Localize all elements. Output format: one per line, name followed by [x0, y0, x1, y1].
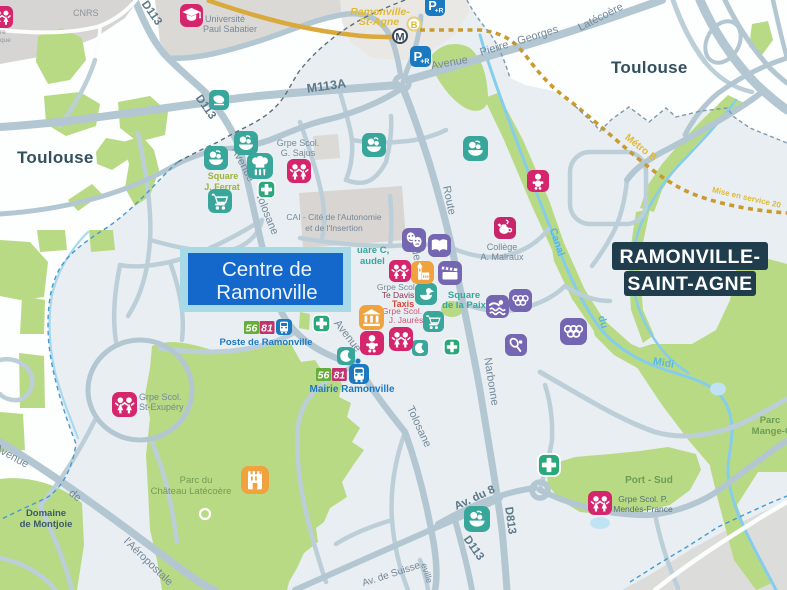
- svg-text:St-Exupéry: St-Exupéry: [139, 402, 184, 412]
- svg-text:+R: +R: [420, 59, 429, 66]
- svg-text:SAINT-AGNE: SAINT-AGNE: [627, 273, 752, 295]
- svg-text:M: M: [395, 32, 404, 44]
- svg-text:81: 81: [261, 323, 273, 335]
- svg-text:Centre de: Centre de: [222, 258, 312, 281]
- svg-text:Toulouse: Toulouse: [611, 58, 688, 77]
- svg-text:audel: audel: [360, 256, 385, 267]
- svg-text:Parc du: Parc du: [180, 475, 213, 486]
- svg-text:Port - Sud: Port - Sud: [625, 475, 673, 486]
- svg-text:Parc: Parc: [760, 415, 781, 426]
- svg-text:St-Agne: St-Agne: [359, 16, 399, 28]
- svg-text:A. Malraux: A. Malraux: [480, 252, 524, 262]
- svg-text:+R: +R: [435, 8, 444, 15]
- svg-text:81: 81: [333, 370, 345, 382]
- svg-text:Collège: Collège: [487, 242, 518, 252]
- svg-text:Ramonville: Ramonville: [216, 281, 317, 304]
- svg-text:Mairie Ramonville: Mairie Ramonville: [309, 384, 394, 395]
- svg-text:Square: Square: [208, 171, 239, 181]
- svg-text:Grpe Scol. P.: Grpe Scol. P.: [618, 494, 667, 504]
- svg-text:G. Sajus: G. Sajus: [281, 148, 316, 158]
- svg-text:Mange-G: Mange-G: [752, 426, 787, 437]
- svg-text:de Montjoie: de Montjoie: [20, 519, 73, 530]
- svg-text:56: 56: [246, 323, 258, 335]
- svg-text:CAI - Cité de l'Autonomie: CAI - Cité de l'Autonomie: [286, 212, 381, 222]
- svg-text:RAMONVILLE-: RAMONVILLE-: [620, 246, 761, 268]
- svg-text:B: B: [411, 20, 418, 31]
- svg-text:que: que: [0, 37, 11, 44]
- svg-text:uare C,: uare C,: [357, 245, 389, 256]
- svg-text:Domaine: Domaine: [26, 508, 66, 519]
- svg-text:Grpe Scol.: Grpe Scol.: [139, 392, 182, 402]
- svg-text:Grpe Scol.: Grpe Scol.: [277, 138, 320, 148]
- svg-text:Poste de Ramonville: Poste de Ramonville: [220, 337, 313, 348]
- svg-text:et de l'Insertion: et de l'Insertion: [305, 223, 363, 233]
- svg-text:Paul Sabatier: Paul Sabatier: [203, 24, 257, 34]
- svg-text:Château Latécoère: Château Latécoère: [151, 486, 232, 497]
- svg-text:J. Jaurès: J. Jaurès: [389, 315, 424, 325]
- svg-text:56: 56: [318, 370, 330, 382]
- svg-text:Université: Université: [205, 14, 245, 24]
- svg-text:re: re: [0, 29, 6, 36]
- svg-text:de la Paix: de la Paix: [442, 300, 487, 311]
- svg-text:Mendès-France: Mendès-France: [613, 504, 673, 514]
- svg-text:Toulouse: Toulouse: [17, 148, 94, 167]
- svg-text:CNRS: CNRS: [73, 8, 99, 18]
